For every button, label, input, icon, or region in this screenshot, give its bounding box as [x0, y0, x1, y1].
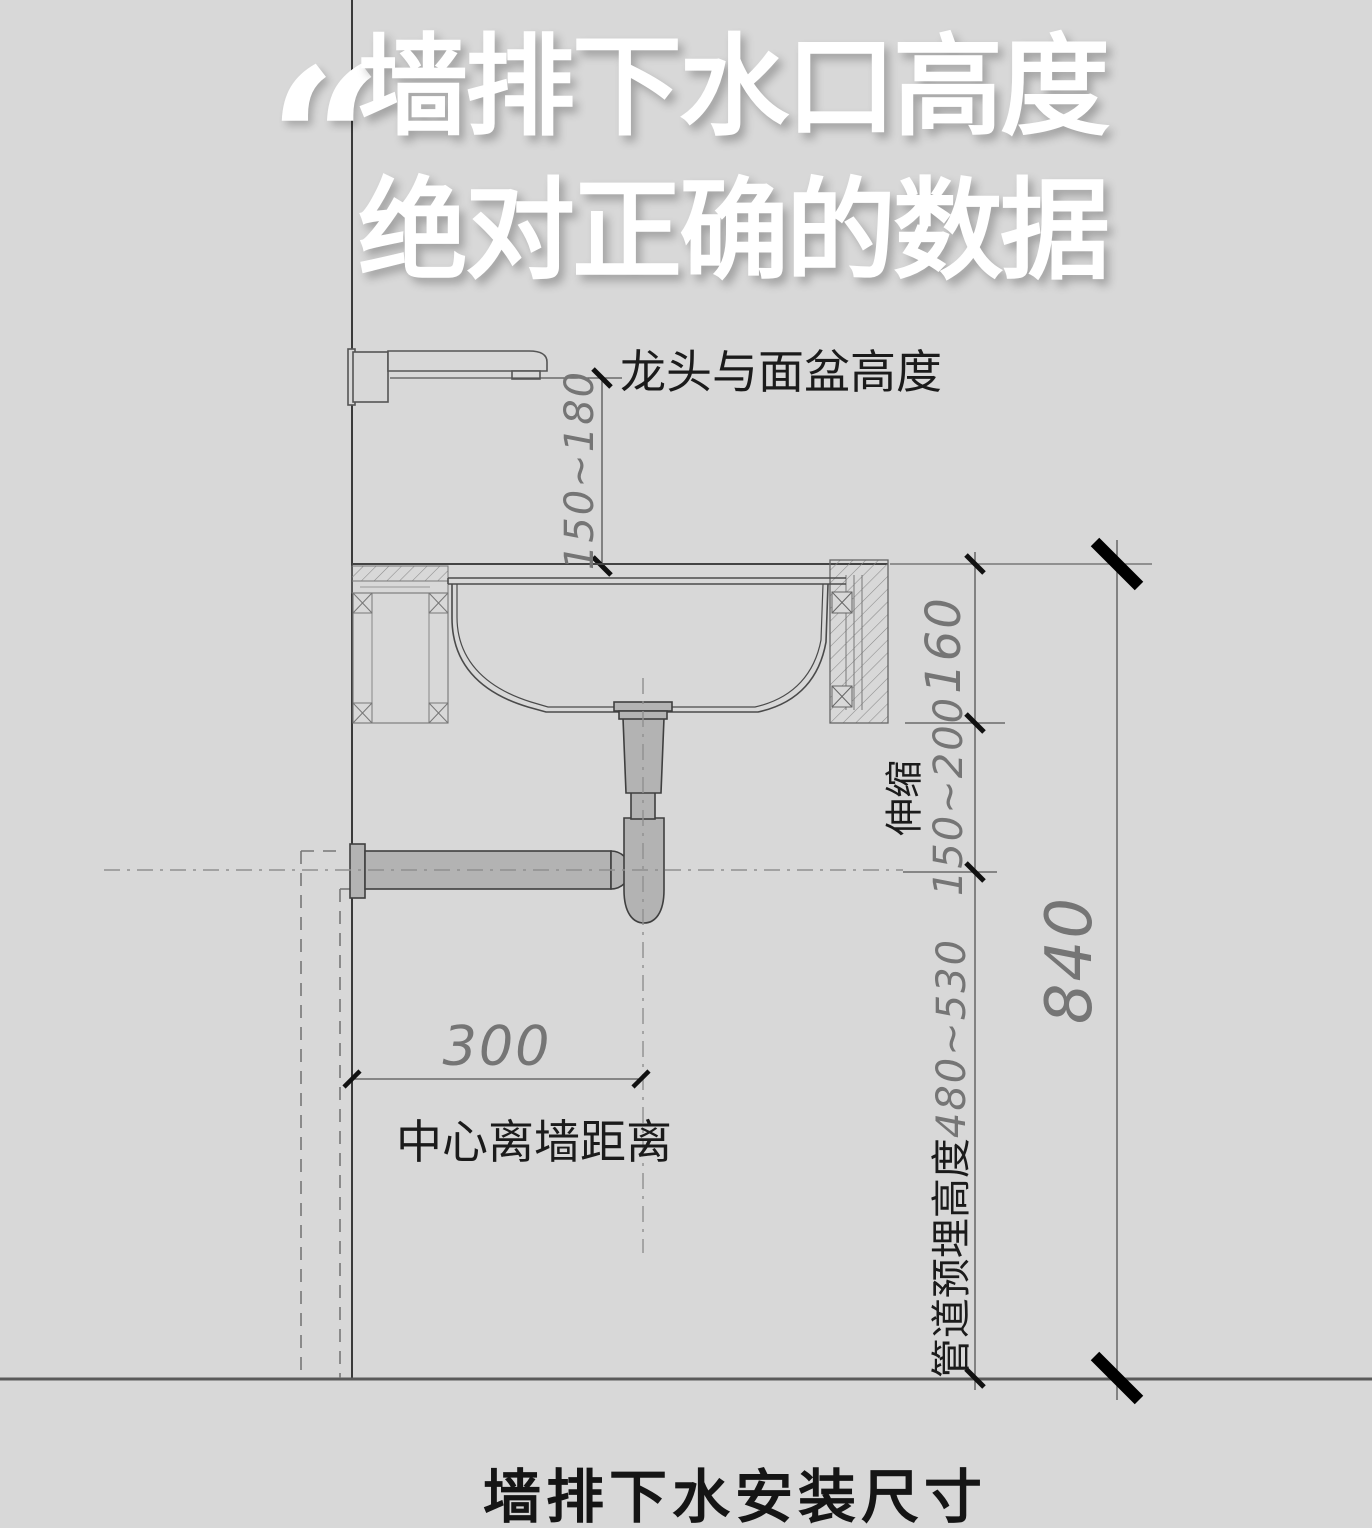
poster: “ “ 墙排下水口高度 绝对正确的数据 龙头与面盆高度 150~180 160 … [0, 0, 1372, 1528]
drain-assembly [350, 702, 672, 923]
label-pipe-embed-height: 管道预埋高度480~530 [919, 938, 977, 1378]
title-line-2: 绝对正确的数据 [358, 176, 1107, 286]
faucet [348, 349, 547, 405]
bottom-caption: 墙排下水安装尺寸 [465, 1450, 1005, 1528]
title-line-1: 墙排下水口高度 [358, 32, 1107, 142]
dim-150-200: 150~200 [926, 696, 972, 896]
dim-faucet-to-basin: 150~180 [557, 370, 603, 570]
basin-bowl-inner [457, 584, 823, 707]
label-center-wall-distance: 中心离墙距离 [396, 1106, 672, 1172]
dim-total-height: 840 [1033, 896, 1107, 1024]
pipe-embed-value: 480~530 [929, 938, 975, 1138]
left-bracket-section [352, 566, 448, 723]
label-faucet-basin-height: 龙头与面盆高度 [620, 336, 942, 402]
faucet-spout [388, 351, 547, 371]
label-telescopic: 伸缩 [874, 760, 929, 836]
hidden-wall-pipe [301, 851, 352, 1378]
wall-pipe-flange [350, 844, 365, 898]
pipe-embed-label-text: 管道预埋高度 [929, 1138, 974, 1378]
dim-160: 160 [916, 596, 972, 694]
dim-center-offset: 300 [442, 1015, 551, 1078]
basin [448, 578, 846, 712]
faucet-escutcheon [353, 352, 388, 402]
